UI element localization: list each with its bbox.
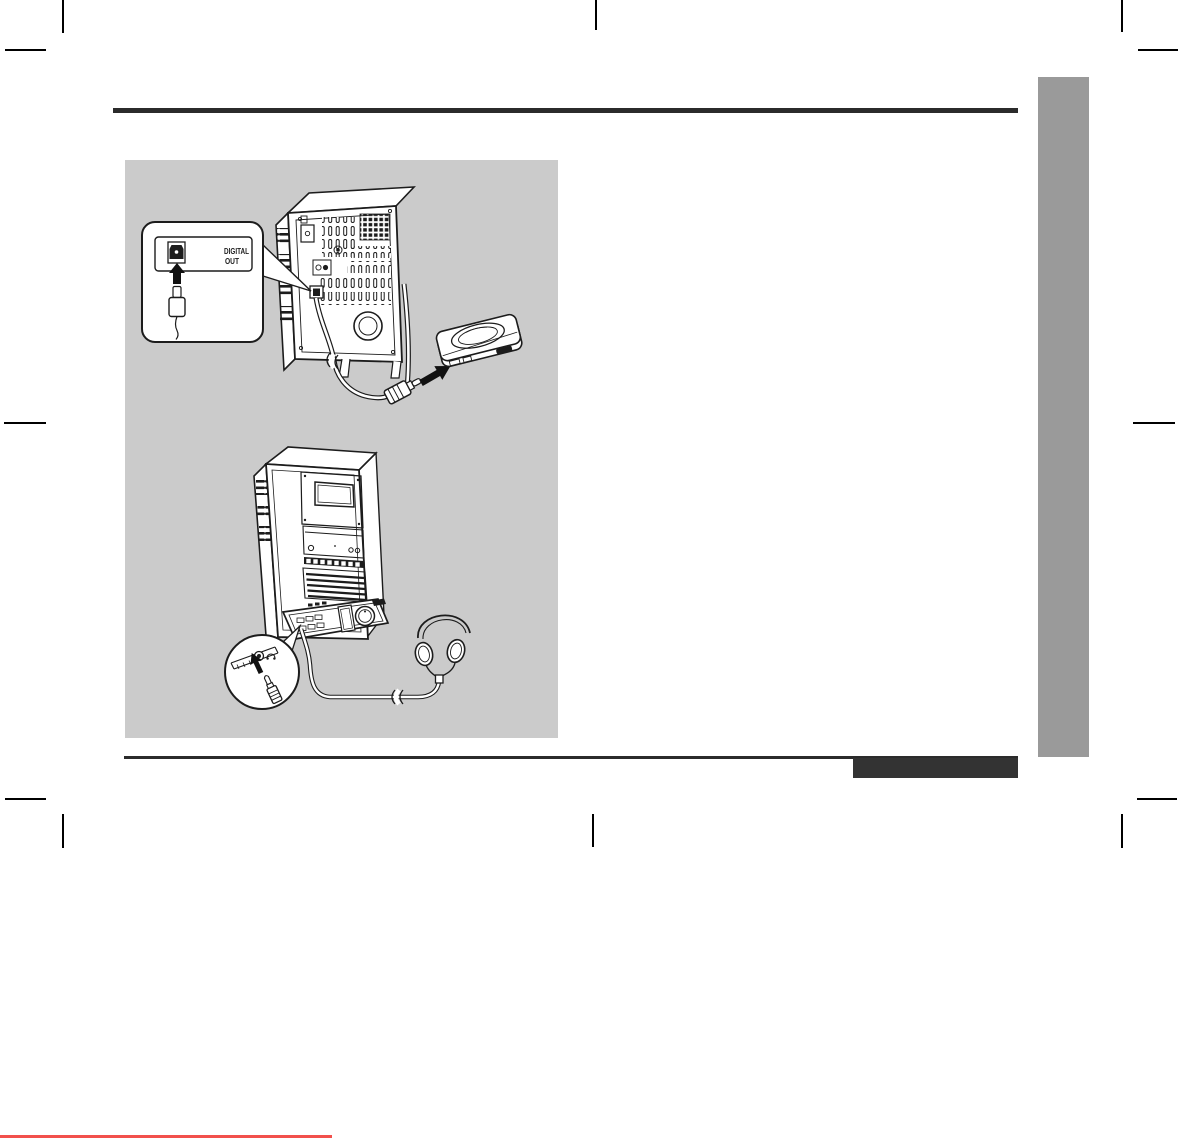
- crop-mark: [595, 0, 597, 30]
- crop-mark: [592, 814, 594, 847]
- crop-mark: [1133, 422, 1175, 424]
- red-bottom-line: [0, 1135, 332, 1138]
- digital-out-label-line2: OUT: [225, 257, 239, 266]
- crop-mark: [1121, 0, 1123, 32]
- headphones-icon: [413, 615, 470, 683]
- crop-mark: [1137, 798, 1177, 800]
- headphone-cable: [301, 629, 439, 704]
- power-cord: [404, 284, 408, 388]
- crop-mark: [1121, 814, 1123, 848]
- optical-out-port-icon: [168, 242, 185, 263]
- digital-out-label-line1: DIGITAL: [224, 247, 249, 256]
- crop-mark: [62, 0, 64, 33]
- optical-plug-icon: [383, 374, 424, 405]
- connection-diagram: DIGITAL OUT: [125, 160, 558, 738]
- crop-mark: [5, 798, 46, 800]
- digital-out-jack: [310, 286, 323, 298]
- illustration-panel: DIGITAL OUT: [125, 160, 558, 738]
- crop-mark: [62, 814, 64, 848]
- crop-mark: [4, 422, 46, 424]
- crop-mark: [5, 49, 46, 51]
- scanned-page: { "page": { "width": 1179, "height": 114…: [0, 0, 1179, 1143]
- headphone-plug-callout: [225, 626, 300, 709]
- crop-mark: [1138, 49, 1178, 51]
- top-rule: [113, 108, 1018, 113]
- side-tab-bar: [1038, 77, 1089, 757]
- footer-black-box: [853, 758, 1018, 778]
- md-recorder: [435, 313, 523, 368]
- stereo-front-view: [254, 447, 388, 649]
